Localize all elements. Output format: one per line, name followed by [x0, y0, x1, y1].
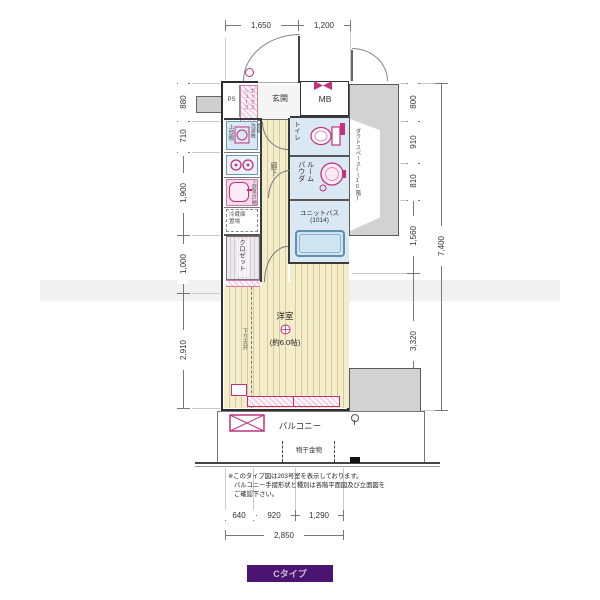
ceiling-light-icon	[280, 324, 291, 335]
dim-right-total: 7,400	[436, 226, 446, 266]
dim-top-2: 1,200	[304, 20, 344, 30]
dim-top-1: 1,650	[241, 20, 281, 30]
note-line-1: ※このタイプ図は203号室を表示しております。	[228, 472, 404, 481]
hook-stem	[354, 420, 355, 425]
note-line-2: バルコニー手摺形状と種別は各階平面図及び立面図を	[228, 481, 404, 490]
dim-right-2: 910	[408, 122, 418, 162]
dim-tick	[177, 408, 190, 409]
wall-stub-topleft	[196, 96, 224, 113]
dim-tick	[177, 293, 190, 294]
ext-line	[225, 38, 226, 80]
laundry-dash-left	[282, 441, 283, 462]
ground-line-2	[195, 466, 440, 467]
fridge-label: 冷蔵庫置場	[229, 212, 249, 230]
bath-label: ユニットバス	[293, 207, 346, 216]
dim-right-4: 1,560	[408, 216, 418, 256]
ext-line	[192, 235, 220, 236]
dim-tick	[225, 20, 226, 31]
dim-bottom-total: 2,850	[264, 530, 304, 540]
dim-tick	[343, 530, 344, 540]
type-badge: Cタイプ	[247, 565, 333, 582]
dim-left-2: 710	[178, 116, 188, 156]
western-room-label: 洋室	[266, 310, 304, 322]
shoe-box-label: シューズボックス	[242, 88, 256, 114]
wall	[224, 177, 261, 178]
ext-line	[192, 152, 220, 153]
wall	[224, 152, 261, 153]
mb-door-leaf	[351, 50, 353, 81]
neighbor-structure-bottom	[349, 368, 421, 412]
dim-tick	[343, 510, 344, 521]
western-room-size-label: (約6.0帖)	[255, 337, 315, 348]
dim-left-3: 1,900	[178, 173, 188, 213]
dim-tick	[435, 410, 448, 411]
ac-box	[231, 384, 247, 396]
mb-door-arc	[352, 48, 388, 81]
balcony-window-divider	[293, 397, 294, 406]
bath-size-label: (1014)	[293, 216, 346, 225]
powder-label: パウダルーム	[296, 161, 314, 184]
toilet-label: トイレ	[292, 121, 303, 151]
balcony-label: バルコニー	[260, 420, 340, 431]
wall	[224, 207, 261, 208]
dim-tick	[350, 20, 351, 31]
bathtub-inner	[299, 234, 341, 253]
ps-label: PS	[224, 95, 239, 105]
hook-icon	[351, 414, 359, 422]
mb-label: MB	[307, 93, 343, 105]
stove-burner-icon	[229, 158, 255, 172]
dim-tick	[295, 510, 296, 521]
duct-note-label: ダクトスペース(〜10階)	[354, 128, 366, 214]
ext-line	[352, 273, 412, 274]
escape-hatch-icon	[229, 414, 265, 432]
ext-line	[192, 121, 220, 122]
powder-sink-icon	[317, 160, 347, 192]
washer-icon	[234, 126, 250, 144]
dim-tick	[225, 530, 226, 540]
ext-line	[192, 83, 220, 84]
door-opening-line	[258, 82, 298, 83]
ground-line-1	[195, 462, 440, 464]
entrance-label: 玄関	[262, 92, 298, 104]
notes-block: ※このタイプ図は203号室を表示しております。 バルコニー手摺形状と種別は各階平…	[228, 472, 404, 502]
dim-tick	[407, 273, 420, 274]
ext-line	[400, 83, 440, 84]
dim-right-1: 800	[408, 82, 418, 122]
mb-valve-icon	[313, 81, 333, 90]
door-hinge-mark	[245, 68, 254, 77]
washer-label: 洗濯機置場	[249, 123, 258, 141]
ext-line	[225, 468, 226, 512]
note-line-3: ご確認下さい。	[228, 490, 404, 499]
laundry-dash-right	[334, 441, 335, 462]
lowered-ceiling-dash	[251, 287, 252, 408]
dim-tick	[177, 235, 190, 236]
dim-bottom-3: 1,290	[300, 510, 338, 520]
dim-tick	[298, 20, 299, 31]
ground-mark	[350, 457, 360, 463]
front-door-leaf	[298, 36, 300, 81]
dim-left-5: 2,910	[178, 330, 188, 370]
dim-right-3: 810	[408, 161, 418, 201]
closet-label: クロゼット	[237, 239, 249, 277]
ext-line	[192, 408, 220, 409]
laundry-hardware-label: 物干金物	[286, 444, 332, 453]
dim-tick	[435, 83, 448, 84]
toilet-icon	[306, 121, 346, 151]
dim-bottom-1: 640	[222, 510, 256, 520]
ext-line	[192, 293, 220, 294]
wall	[224, 118, 262, 120]
floorplan-canvas: 1,650 1,200 880 710 1,900 1,000 2,910 80…	[0, 0, 600, 600]
dim-bottom-2: 920	[257, 510, 291, 520]
closet-folding-door	[226, 280, 260, 287]
sink-icon	[229, 182, 249, 202]
dim-right-5: 3,320	[408, 321, 418, 361]
upper-cabinet-label: 上部吊戸棚	[250, 180, 258, 206]
dim-left-4: 1,000	[178, 244, 188, 284]
lowered-ceiling-label: 下り天井	[241, 328, 250, 356]
western-room-floor-right	[290, 264, 349, 408]
